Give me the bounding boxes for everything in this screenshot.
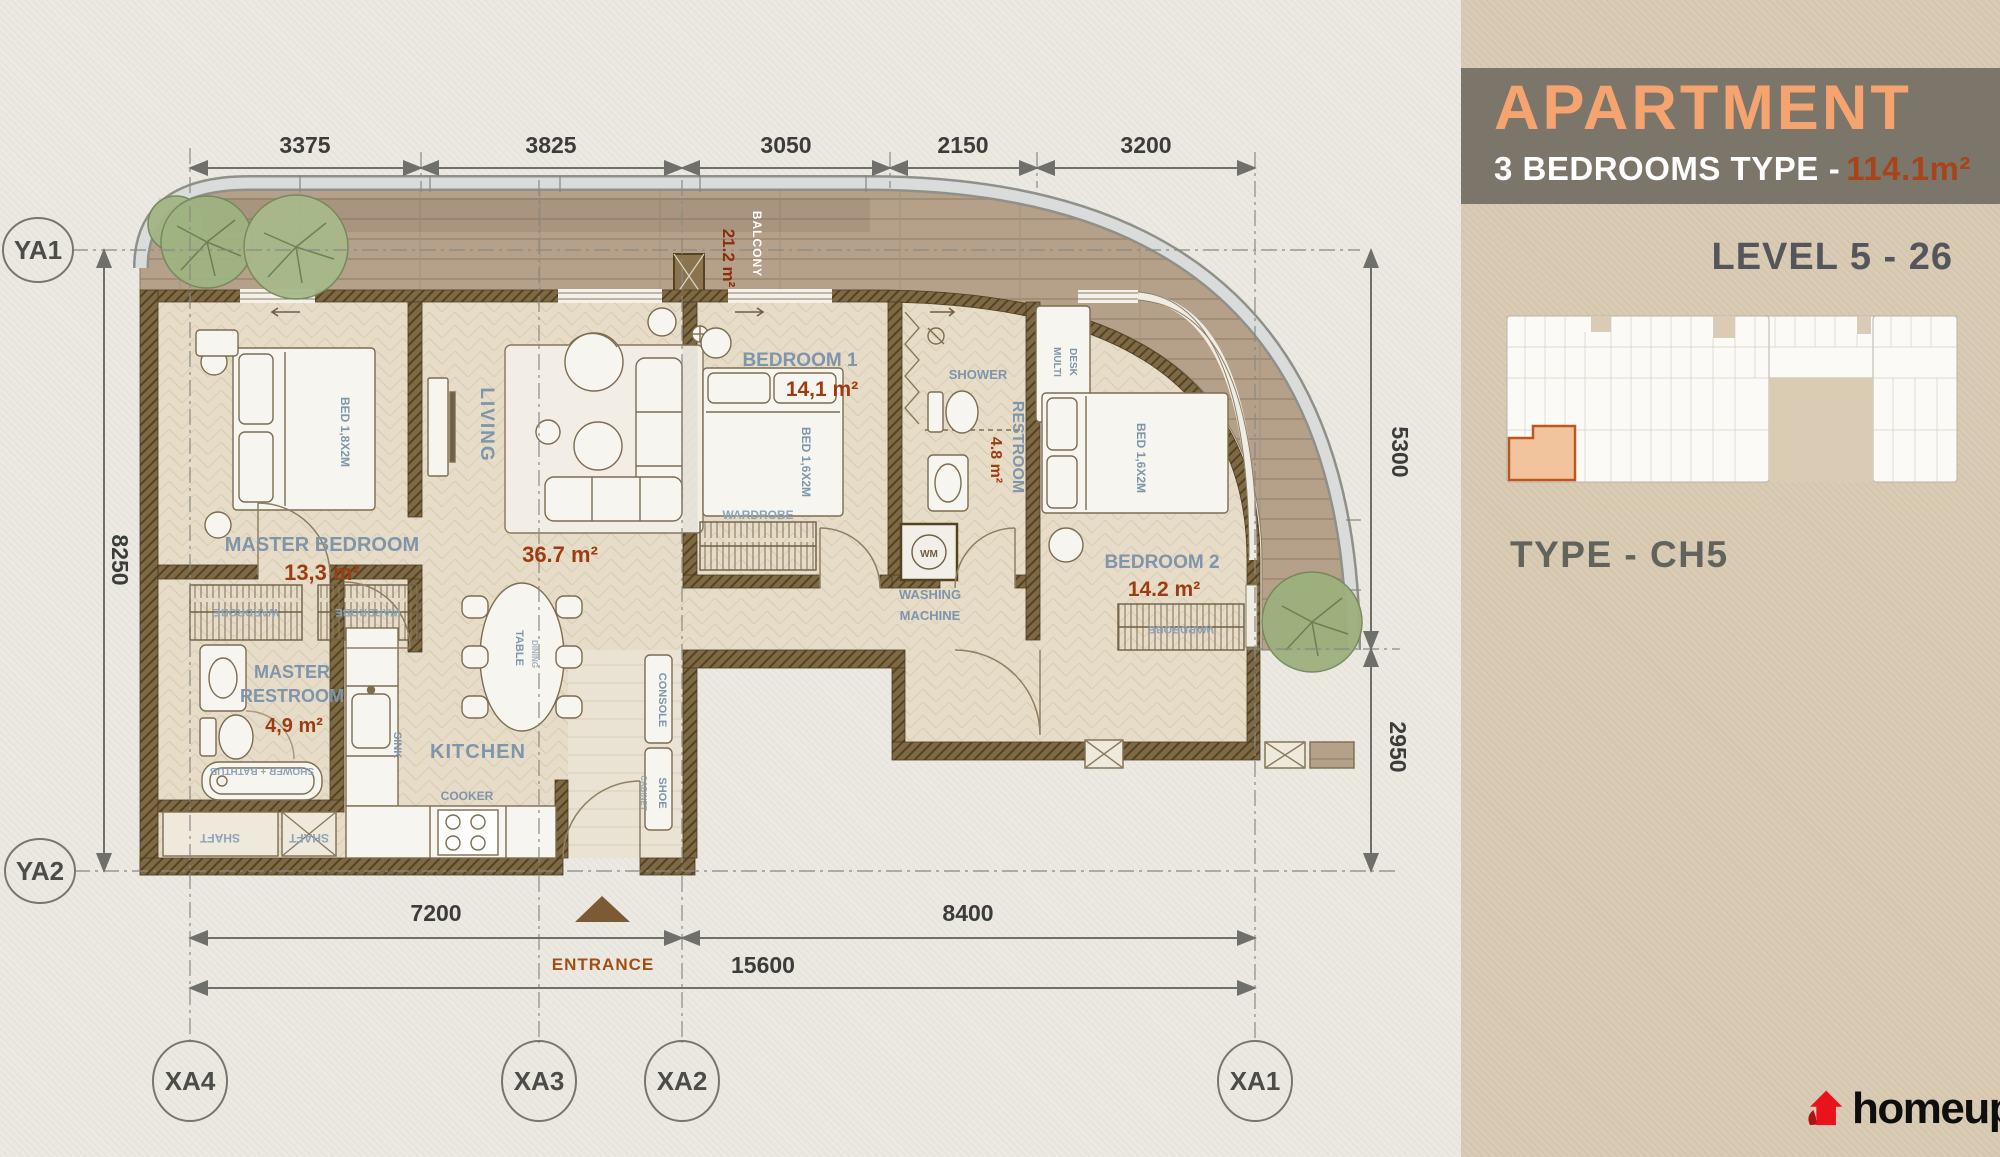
label-balcony: BALCONY xyxy=(750,211,764,277)
label-restroom: RESTROOM xyxy=(1009,401,1026,493)
grid-xa3: XA3 xyxy=(514,1066,565,1096)
dim-8400: 8400 xyxy=(942,900,993,926)
label-bed-2: BED 1,6X2M xyxy=(1134,423,1148,493)
label-wm: WM xyxy=(920,549,938,560)
label-shower-bathtub: SHOWER + BATHTUB xyxy=(210,765,314,776)
label-living: LIVING xyxy=(476,387,497,462)
label-shaft-1: SHAFT xyxy=(199,831,240,845)
label-bedroom1: BEDROOM 1 xyxy=(742,350,858,371)
floor-plan: 3375 3825 3050 2150 3200 8250 5300 2950 … xyxy=(0,0,1461,1157)
dim-3050: 3050 xyxy=(760,132,811,158)
dim-3825: 3825 xyxy=(525,132,576,158)
label-console: CONSOLE xyxy=(656,673,668,727)
title-band: APARTMENT 3 BEDROOMS TYPE-114.1m² xyxy=(1461,68,2000,204)
label-cabinet: CABINET xyxy=(639,775,648,811)
label-bed-1: BED 1,6X2M xyxy=(799,427,813,497)
label-kitchen: KITCHEN xyxy=(430,741,526,763)
label-wardrobe-4: WARDROBE xyxy=(1148,623,1213,635)
label-shaft-2: SHAFT xyxy=(288,831,329,845)
label-cooker: COOKER xyxy=(441,789,494,803)
entrance-label: ENTRANCE xyxy=(552,955,654,974)
dim-5300: 5300 xyxy=(1387,426,1413,477)
area-bedroom1: 14,1 m² xyxy=(786,378,858,401)
level-range-label: LEVEL 5 - 26 xyxy=(1461,236,1953,279)
sheet-title: APARTMENT xyxy=(1494,72,2000,144)
label-wardrobe-1: WARDROBE xyxy=(213,606,278,618)
label-shoe: SHOE xyxy=(656,777,668,808)
label-bed-master: BED 1,8X2M xyxy=(338,397,352,467)
label-master-bedroom: MASTER BEDROOM xyxy=(225,534,419,556)
label-table: TABLE xyxy=(513,630,525,666)
label-machine: MACHINE xyxy=(900,608,961,623)
total-area-value: 114.1m² xyxy=(1846,150,1971,187)
area-restroom: 4.8 m² xyxy=(987,437,1004,483)
label-wardrobe-3: WARDROBE xyxy=(722,508,793,522)
label-multi: MULTI xyxy=(1051,347,1062,377)
label-shower: SHOWER xyxy=(949,367,1008,382)
grid-ya1: YA1 xyxy=(14,235,62,265)
area-living: 36.7 m² xyxy=(522,542,598,567)
area-balcony: 21.2 m² xyxy=(719,229,738,288)
brand-logo: homeup xyxy=(1802,1084,2000,1134)
grid-ya2: YA2 xyxy=(16,856,64,886)
sheet-subtitle: 3 BEDROOMS TYPE-114.1m² xyxy=(1494,150,2000,188)
apartment-plan-sheet: 3375 3825 3050 2150 3200 8250 5300 2950 … xyxy=(0,0,2000,1157)
area-bedroom2: 14.2 m² xyxy=(1128,578,1200,601)
subtitle-dash: - xyxy=(1819,150,1847,187)
label-master-restroom-2: RESTROOM xyxy=(240,686,344,706)
area-master-restroom: 4,9 m² xyxy=(265,715,323,737)
bedrooms-type-label: 3 BEDROOMS TYPE xyxy=(1494,150,1819,187)
label-dining: DINING xyxy=(530,640,539,668)
dim-3375: 3375 xyxy=(279,132,330,158)
building-key-plan xyxy=(1505,298,1960,493)
dim-8250: 8250 xyxy=(107,534,133,585)
label-washing: WASHING xyxy=(899,587,961,602)
area-master-bedroom: 13,3 m² xyxy=(284,560,360,585)
homeup-house-icon xyxy=(1802,1086,1848,1132)
entrance-marker: ENTRANCE xyxy=(552,896,654,974)
dim-7200: 7200 xyxy=(410,900,461,926)
brand-name: homeup xyxy=(1852,1084,2000,1134)
label-sink: SINK xyxy=(391,732,403,758)
label-bedroom2: BEDROOM 2 xyxy=(1104,552,1219,573)
label-wardrobe-2: WARDROBE xyxy=(335,606,400,618)
dim-3200: 3200 xyxy=(1120,132,1171,158)
unit-type-label: TYPE - CH5 xyxy=(1510,534,1729,576)
grid-xa2: XA2 xyxy=(657,1066,708,1096)
dim-15600: 15600 xyxy=(731,952,795,978)
label-master-restroom-1: MASTER xyxy=(254,662,330,682)
grid-xa4: XA4 xyxy=(165,1066,216,1096)
dim-2150: 2150 xyxy=(937,132,988,158)
grid-xa1: XA1 xyxy=(1230,1066,1281,1096)
dim-2950: 2950 xyxy=(1385,721,1411,772)
label-desk: DESK xyxy=(1067,348,1078,377)
